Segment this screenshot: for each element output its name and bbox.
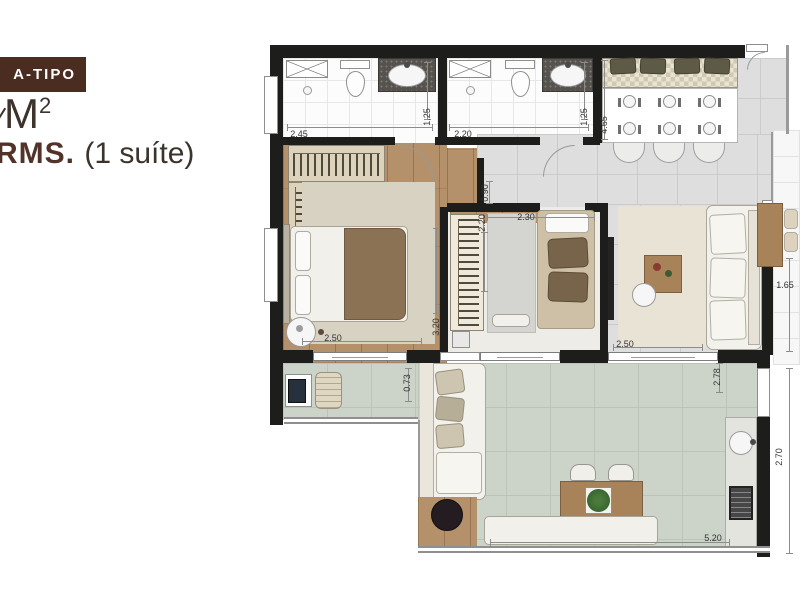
shower-icon <box>449 60 491 78</box>
dim-line <box>789 368 790 554</box>
sofa-cushion <box>709 299 746 340</box>
wall-bath-divider <box>438 45 447 143</box>
decor-dot <box>653 263 661 271</box>
pillow <box>295 231 311 271</box>
console-planter <box>757 203 783 267</box>
shower-head-icon <box>303 86 312 95</box>
dim-line <box>490 542 730 543</box>
bench-cushion <box>704 57 731 74</box>
pillow <box>295 275 311 315</box>
pillow <box>547 271 588 302</box>
foot-bench <box>492 314 530 327</box>
terrace-right-window <box>757 368 770 417</box>
terrace-sofa-back <box>420 363 434 500</box>
dim-label: 0.73 <box>402 368 412 398</box>
floorplan-page: A-TIPO M2 RMS. (1 suíte) <box>0 0 800 600</box>
dim-label: 2.70 <box>774 442 784 472</box>
side-tray <box>632 283 656 307</box>
place-setting-icon <box>623 122 636 135</box>
place-setting-icon <box>623 95 636 108</box>
dim-label: 2.20 <box>477 208 487 238</box>
dim-label: 1.65 <box>770 280 800 290</box>
wall-terrace-right <box>757 417 770 557</box>
dim-label: 2.20 <box>448 129 478 139</box>
wall-top <box>270 45 745 58</box>
balcony-railing <box>284 417 418 424</box>
bedside-table <box>286 317 316 347</box>
terrace-chair <box>570 464 596 481</box>
dim-label: 5.20 <box>698 533 728 543</box>
place-setting-icon <box>663 95 676 108</box>
dim-line <box>487 217 595 218</box>
wall-living-left <box>600 203 608 355</box>
toilet-tank-icon <box>505 60 535 69</box>
wall-bottom-1 <box>283 350 313 363</box>
wall-bottom-3 <box>560 350 608 363</box>
plan-type-badge: A-TIPO <box>0 57 86 92</box>
shower-icon <box>286 60 328 78</box>
dim-label: 3.20 <box>431 312 441 342</box>
common-divider-edge <box>771 132 773 204</box>
desk-chair <box>315 372 342 409</box>
sofa-cushion <box>709 213 747 255</box>
wall-bedroom2-top <box>447 203 540 212</box>
bed-blanket <box>344 228 406 320</box>
tv-panel <box>608 237 614 320</box>
master-nook-floor <box>447 148 477 208</box>
stool <box>784 232 798 252</box>
place-setting-icon <box>663 122 676 135</box>
bed-headboard <box>283 224 290 324</box>
dim-line <box>436 228 437 314</box>
small-desk <box>452 331 470 348</box>
terrace-railing <box>418 546 770 553</box>
wall-bath2-bottom-right <box>583 137 600 145</box>
dim-label: 2.50 <box>610 339 640 349</box>
bench-cushion <box>640 58 667 75</box>
decor-dot <box>296 325 303 332</box>
faucet-icon <box>404 62 410 68</box>
dim-label: 2.45 <box>284 129 314 139</box>
bench-cushion <box>674 58 701 75</box>
sofa-cushion <box>709 257 746 298</box>
dim-label: 2.78 <box>712 362 722 392</box>
wall-bottom-2 <box>407 350 440 363</box>
closet-top <box>288 145 385 182</box>
monitor-icon <box>288 379 306 403</box>
terrace-chair <box>608 464 634 481</box>
bench-cushion <box>610 57 637 74</box>
master-window <box>264 228 278 302</box>
wall-living-right <box>762 258 773 355</box>
terrace-window-left <box>440 352 480 361</box>
dim-label: 2.30 <box>511 212 541 222</box>
dim-label: 1.25 <box>579 102 589 132</box>
dim-line <box>789 258 790 352</box>
place-setting-icon <box>703 95 716 108</box>
dim-label: 1.25 <box>422 102 432 132</box>
faucet-icon <box>750 439 756 445</box>
place-setting-icon <box>703 122 716 135</box>
entry-door <box>746 44 768 52</box>
dim-line <box>449 127 589 128</box>
kitchen-right-edge <box>786 45 789 134</box>
sofa-cushion <box>435 423 465 449</box>
terrace-bench <box>484 516 658 545</box>
sofa-cushion <box>434 368 465 396</box>
bathroom-window <box>264 76 278 134</box>
faucet-icon <box>565 62 571 68</box>
decor-dot <box>665 270 672 277</box>
plant-icon <box>587 489 610 512</box>
living-sliding-door <box>608 352 718 361</box>
wall-bath1-corner <box>435 137 447 145</box>
entry-door-swing <box>747 52 765 70</box>
dim-line <box>287 127 433 128</box>
grill-icon <box>729 486 753 520</box>
stool <box>784 209 798 229</box>
wall-master-bedroom2 <box>440 207 448 355</box>
pillow <box>545 213 589 233</box>
dim-label: 2.50 <box>318 333 348 343</box>
dim-label: 0.90 <box>480 178 490 208</box>
dim-label: 4.65 <box>599 110 609 140</box>
sofa-cushion <box>435 396 465 423</box>
bedroom2-sliding-door <box>480 352 560 361</box>
round-table <box>431 499 463 531</box>
pillow <box>547 237 589 269</box>
shower-head-icon <box>466 86 475 95</box>
master-sliding-door <box>313 352 407 361</box>
sofa-seat <box>436 452 482 494</box>
dim-line <box>484 232 485 292</box>
toilet-tank-icon <box>340 60 370 69</box>
area-label: M2 <box>4 90 51 138</box>
rooms-label: RMS. (1 suíte) <box>0 137 194 171</box>
